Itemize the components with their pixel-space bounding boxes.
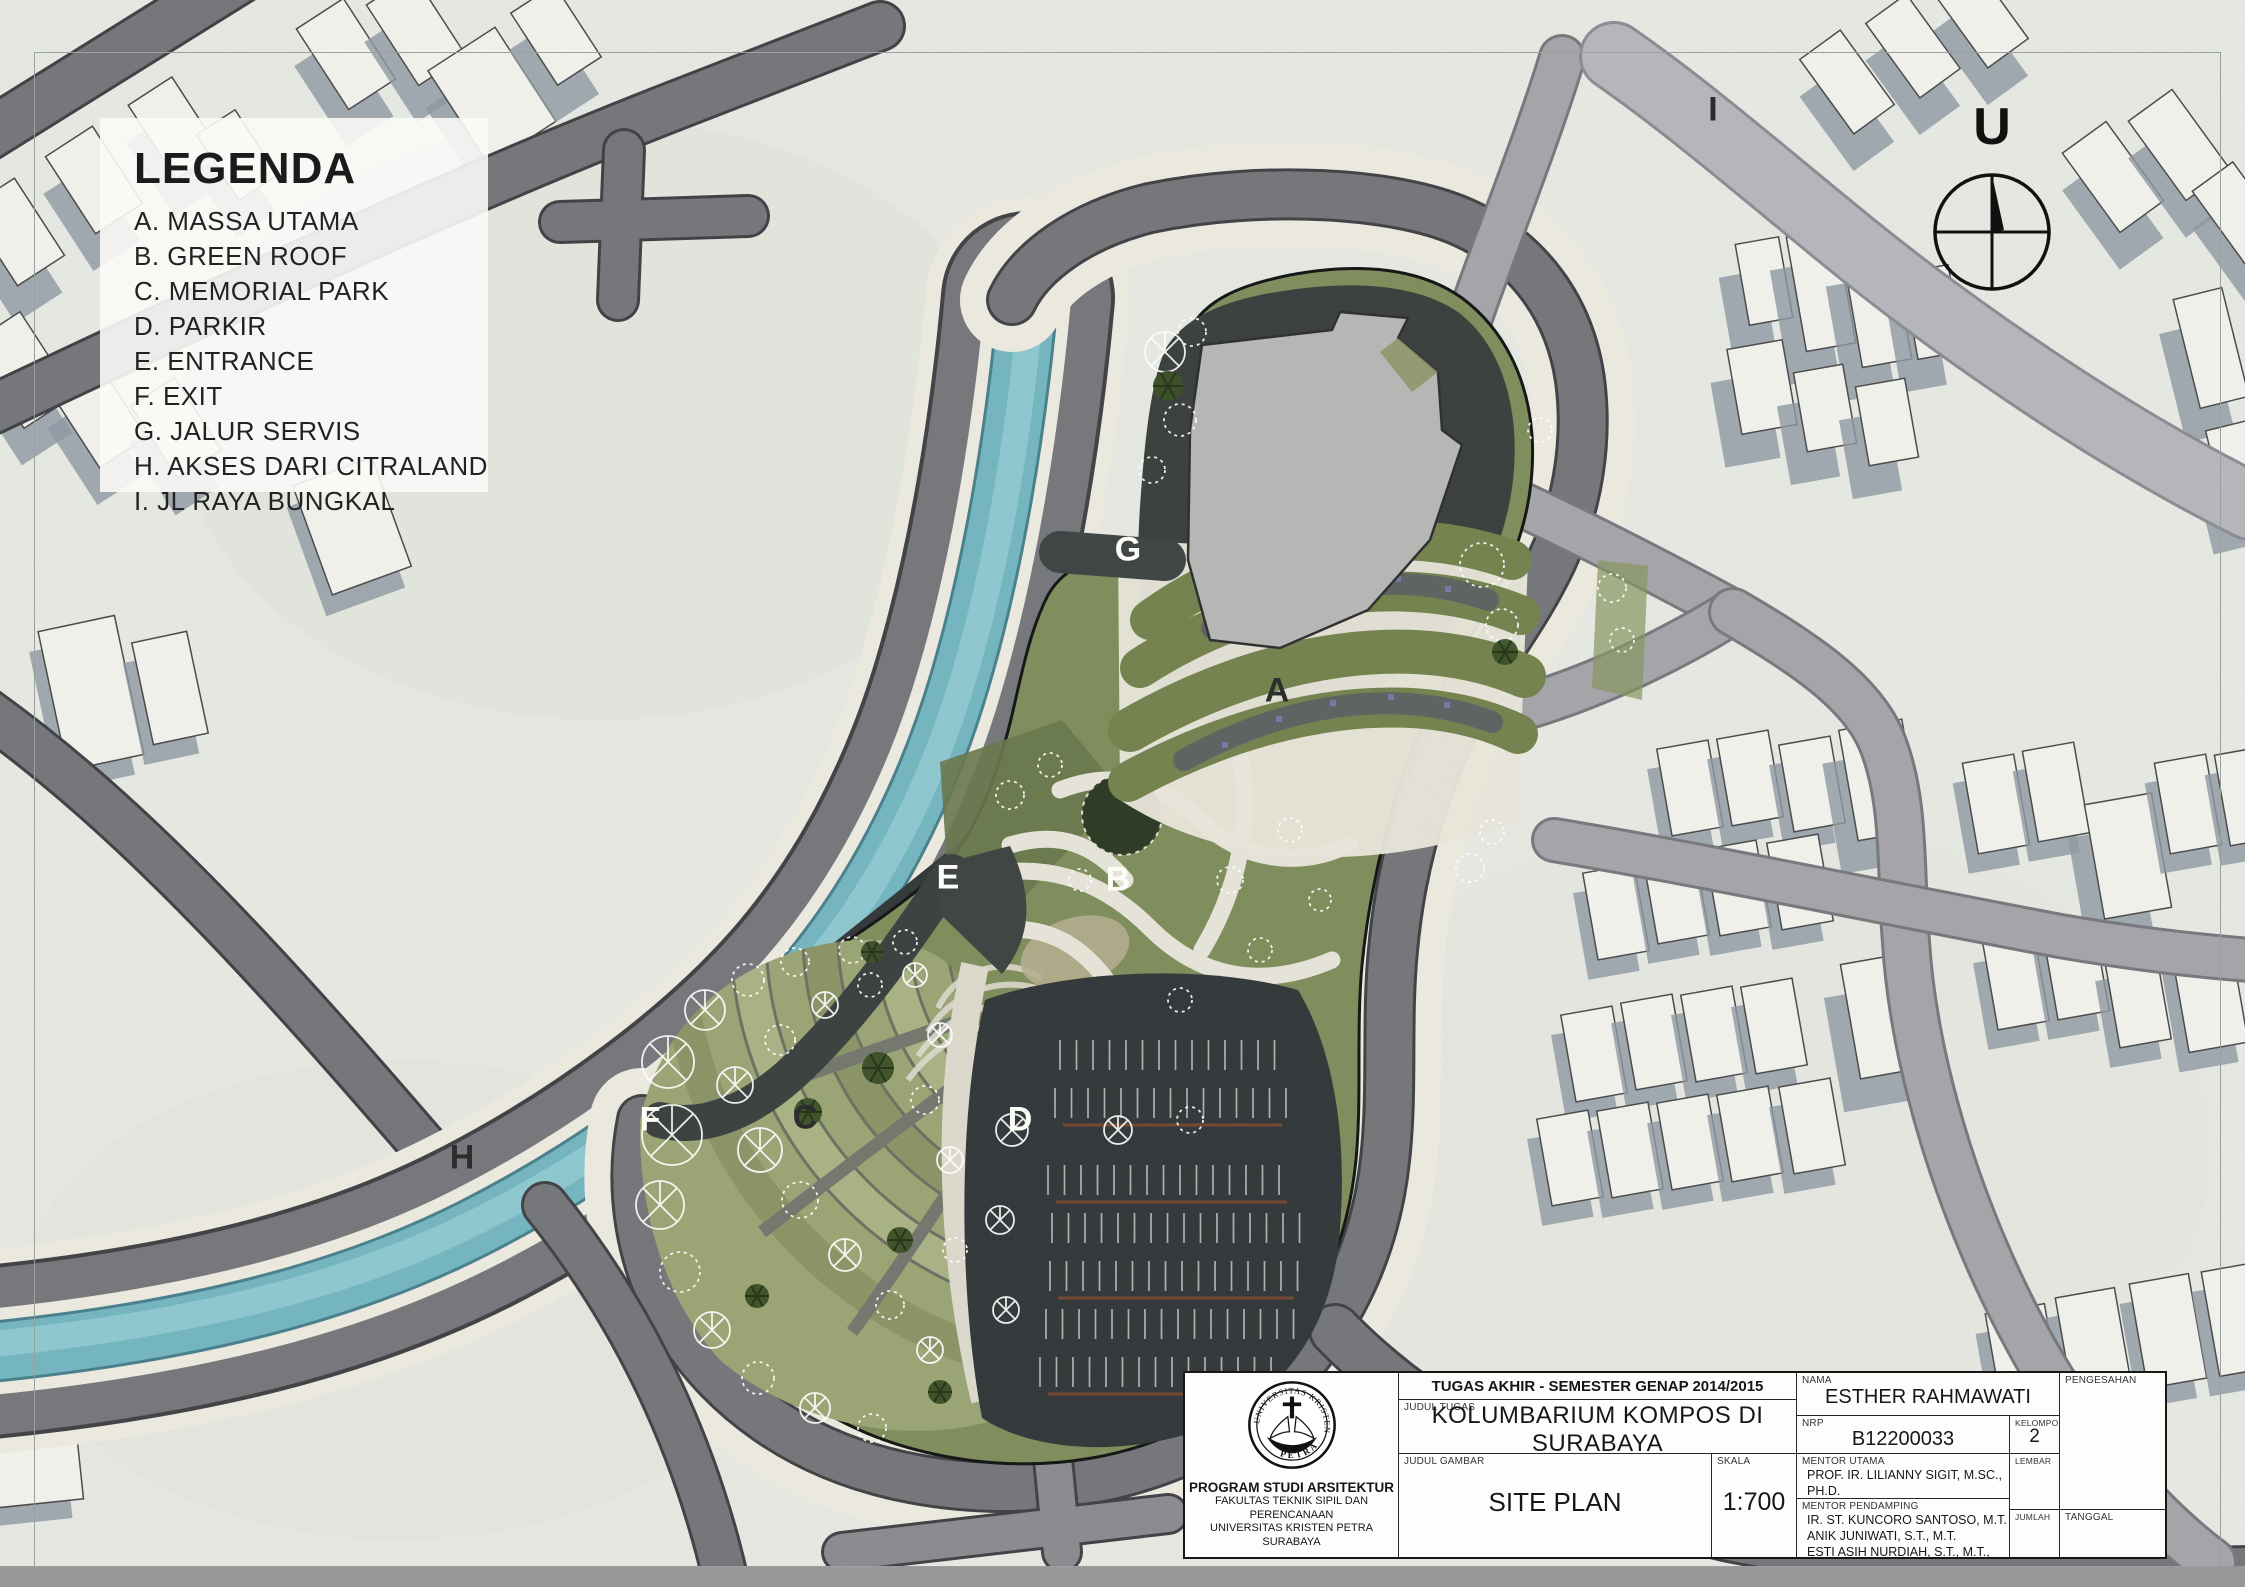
kelompok-value: 2 (2010, 1428, 2059, 1446)
nrp-value: B12200033 (1797, 1429, 2009, 1449)
legend-item: F. EXIT (134, 379, 488, 414)
mentor-pendamping-2: ANIK JUNIWATI, S.T., M.T. (1797, 1528, 2009, 1544)
legend-item: E. ENTRANCE (134, 344, 488, 379)
legend-item: B. GREEN ROOF (134, 239, 488, 274)
skala-label: SKALA (1712, 1454, 1796, 1467)
label-jalur-servis: G (1115, 531, 1141, 570)
tanggal-label: TANGGAL (2060, 1510, 2165, 1523)
legend-item: C. MEMORIAL PARK (134, 274, 488, 309)
university-name: UNIVERSITAS KRISTEN PETRA (1185, 1522, 1398, 1536)
label-exit: F (640, 1101, 661, 1140)
legend-panel: LEGENDA A. MASSA UTAMA B. GREEN ROOF C. … (100, 118, 488, 492)
label-entrance: E (937, 859, 960, 898)
legend-item: A. MASSA UTAMA (134, 204, 488, 239)
site-plan-sheet: A B C D E F G H I LEGENDA A. MASSA UTAMA… (0, 0, 2245, 1587)
lembar-label: LEMBAR (2010, 1454, 2059, 1466)
label-jl-raya-bungkal: I (1708, 91, 1717, 130)
mentor-pendamping-3: ESTI ASIH NURDIAH, S.T., M.T., PH.D. (1797, 1544, 2009, 1557)
mentor-utama-value: PROF. IR. LILIANNY SIGIT, M.SC., PH.D. (1797, 1467, 2009, 1499)
judul-gambar-value: SITE PLAN (1399, 1467, 1711, 1537)
palm-tree-icon (887, 1227, 913, 1253)
mentor-pendamping-label: MENTOR PENDAMPING (1797, 1499, 2009, 1512)
north-arrow: U (1928, 92, 2060, 302)
palm-tree-icon (1153, 371, 1183, 401)
institution-cell: UNIVERSITAS KRISTEN PETRA PROGRAM STUDI … (1185, 1373, 1399, 1557)
palm-tree-icon (862, 1052, 894, 1084)
label-green-roof: B (1106, 861, 1131, 900)
judul-gambar-label: JUDUL GAMBAR (1399, 1454, 1711, 1467)
legend-item: H. AKSES DARI CITRALAND (134, 449, 488, 484)
mentor-pendamping-1: IR. ST. KUNCORO SANTOSO, M.T. (1797, 1512, 2009, 1528)
label-akses-citraland: H (450, 1139, 475, 1178)
faculty-name: FAKULTAS TEKNIK SIPIL DAN PERENCANAAN (1185, 1495, 1398, 1522)
mentor-utama-label: MENTOR UTAMA (1797, 1454, 2009, 1467)
jumlah-label: JUMLAH (2010, 1510, 2059, 1522)
title-block: UNIVERSITAS KRISTEN PETRA PROGRAM STUDI … (1183, 1371, 2167, 1559)
legend-item: I. JL RAYA BUNGKAL (134, 484, 488, 519)
nama-label: NAMA (1797, 1373, 2059, 1386)
legend-item: G. JALUR SERVIS (134, 414, 488, 449)
pengesahan-label: PENGESAHAN (2060, 1373, 2165, 1386)
palm-tree-icon (1492, 639, 1518, 665)
nama-value: ESTHER RAHMAWATI (1797, 1386, 2059, 1408)
north-needle (1992, 175, 2004, 232)
legend-item: D. PARKIR (134, 309, 488, 344)
petra-university-logo: UNIVERSITAS KRISTEN PETRA (1246, 1379, 1338, 1471)
label-memorial-park: C (793, 1099, 818, 1138)
palm-tree-icon (861, 941, 883, 963)
label-massa-utama: A (1265, 672, 1290, 711)
label-parkir: D (1008, 1101, 1033, 1140)
skala-value: 1:700 (1712, 1467, 1796, 1537)
city-name: SURABAYA (1185, 1536, 1398, 1550)
north-label: U (1973, 98, 2011, 156)
judul-tugas-value: KOLUMBARIUM KOMPOS DI SURABAYA (1399, 1413, 1796, 1447)
program-name: PROGRAM STUDI ARSITEKTUR (1185, 1480, 1398, 1495)
legend-title: LEGENDA (134, 144, 488, 194)
palm-tree-icon (745, 1284, 769, 1308)
palm-tree-icon (928, 1380, 952, 1404)
sheet-header: TUGAS AKHIR - SEMESTER GENAP 2014/2015 (1399, 1373, 1797, 1400)
